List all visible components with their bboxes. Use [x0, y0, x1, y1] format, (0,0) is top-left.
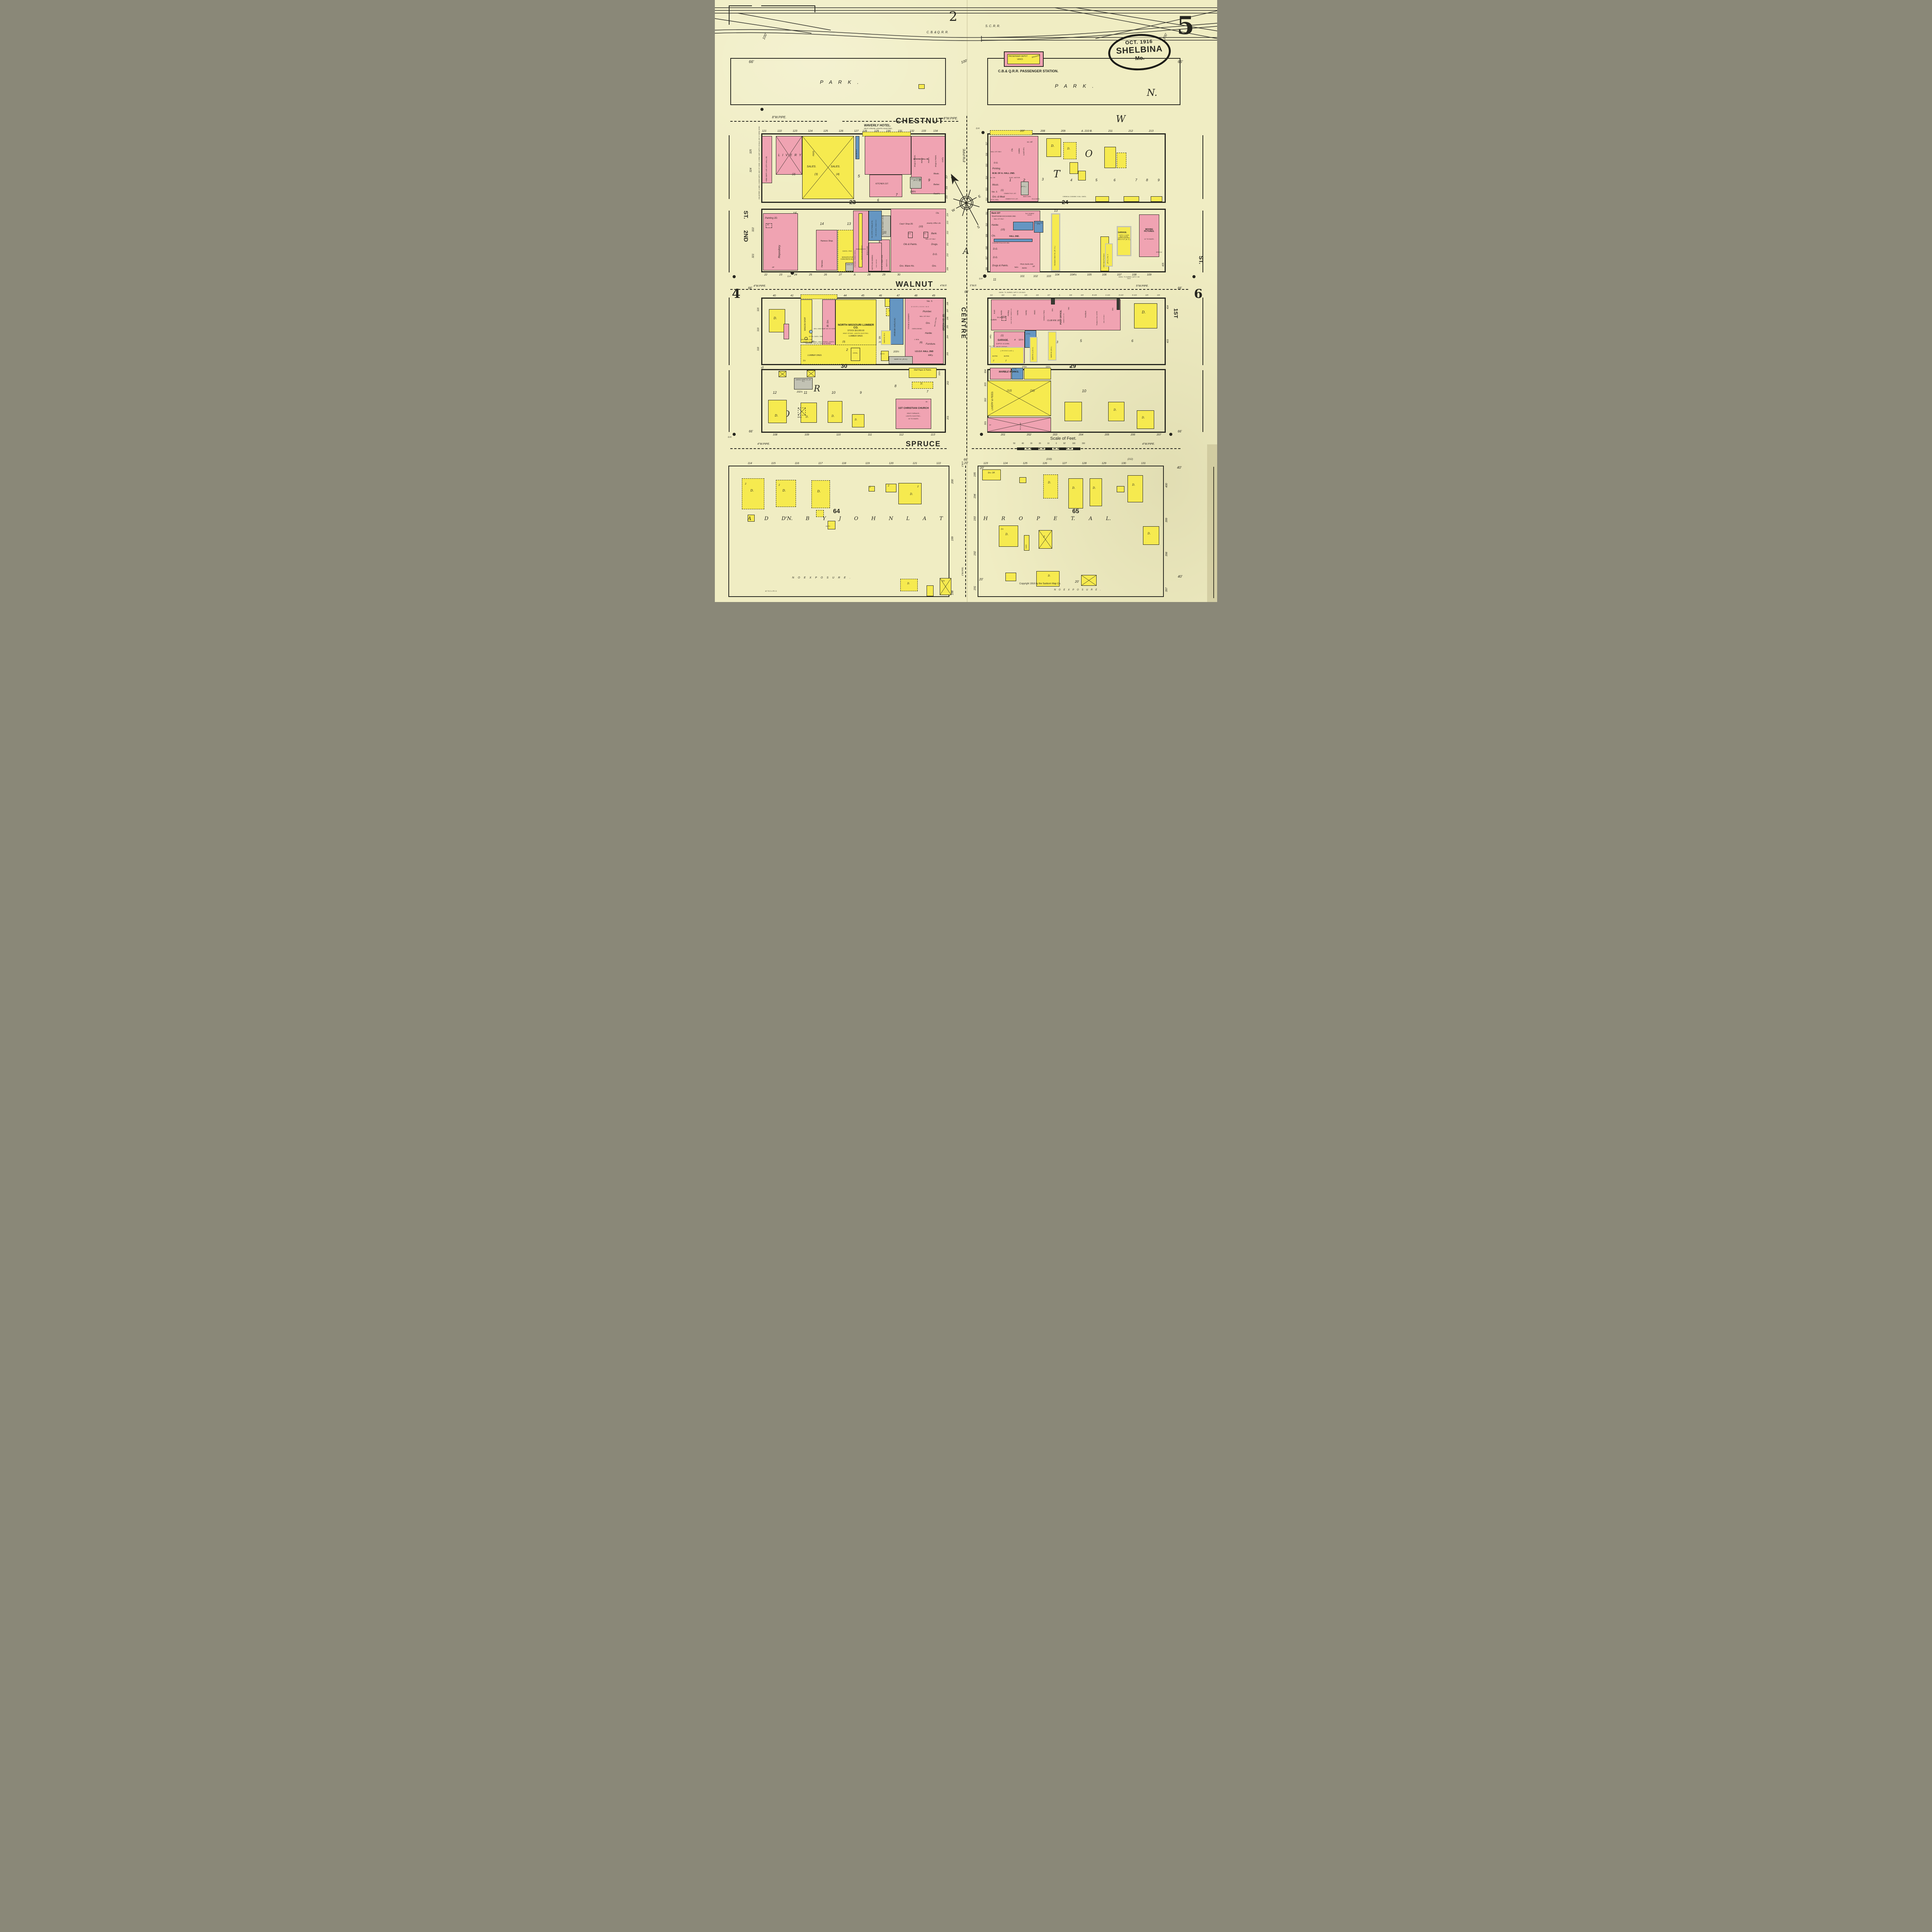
dim: 20': [1075, 580, 1079, 583]
store-label: 2ND Hand Furniture.: [1103, 253, 1105, 267]
railroad-label-scrr: S. C. R. R.: [985, 25, 1000, 28]
dwelling: [1117, 153, 1126, 168]
lot-number: 50: [1013, 443, 1015, 445]
lot-num: (15): [1001, 229, 1005, 231]
lot-num: 3: [1056, 341, 1058, 344]
livery-feed: [987, 381, 1051, 416]
store-label: Drs. Off.: [983, 472, 1000, 474]
lot-num: 9: [928, 179, 930, 182]
dim-66ft: 66': [1178, 287, 1182, 290]
water-pipe: [972, 289, 1188, 290]
lot-number: 114: [748, 462, 752, 465]
lot-number: 123: [983, 462, 988, 465]
store-label: Drugs & Paints.: [914, 155, 916, 167]
pipe-label: 5"W.P.: [970, 285, 976, 287]
lot-number: 23: [779, 274, 782, 276]
side-num: 193: [974, 516, 976, 521]
note: OVERLOOKING.: [912, 328, 922, 330]
dim: 20': [979, 578, 983, 581]
lot-num: 3: [1042, 178, 1044, 181]
side-num: 322: [752, 227, 755, 232]
store-label: Clo.: [992, 235, 996, 237]
side-num: 316: [986, 153, 988, 156]
note: ELEC. MOTOR.: [876, 259, 877, 267]
lumber-label: NORTH MISSOURI LUMBER CO.: [835, 324, 876, 330]
store-label: WARE HO. (IR.CL): [889, 359, 912, 360]
gasol-note: GASOL. T'K. BURIED. CAP'CY. 300 GALS.: [1117, 277, 1141, 279]
lot-number: 101: [1020, 275, 1025, 278]
lot-number: D'N.: [782, 516, 793, 522]
lot-row: 101102103: [1020, 275, 1051, 278]
shed: [1005, 573, 1016, 581]
street-centre-pipe: [965, 466, 966, 597]
dwelling-label: D.: [1142, 311, 1146, 315]
side-num: 204: [947, 335, 949, 338]
frame-mark: [729, 135, 730, 199]
side-num: 304: [985, 369, 987, 373]
dwelling-label: D.: [910, 493, 913, 496]
dwelling-label: D.: [1072, 487, 1075, 490]
lot-number: 208: [1041, 130, 1045, 133]
lot-number: 211: [1108, 130, 1112, 133]
dim-66ft: 66': [749, 430, 753, 433]
copyright: Copyright 1916 by the Sanborn Map Co.: [1019, 583, 1061, 585]
dwelling-label: D.: [920, 383, 923, 385]
lot-number: 122: [777, 130, 782, 133]
lot-num: 11: [883, 231, 886, 234]
block-number: 65: [1072, 509, 1079, 515]
dwelling-label: D.: [806, 416, 809, 418]
lot-number: 45: [861, 294, 864, 297]
dwelling-label: D.: [855, 419, 857, 421]
addition-letter: A: [963, 247, 969, 256]
lot-number: 41: [791, 294, 794, 297]
lot-num: 11: [804, 391, 807, 395]
dim-66ft: 66': [748, 287, 752, 290]
store-label: Variety: [1017, 310, 1019, 315]
lot-number: 108: [773, 434, 777, 436]
store-label: STAGE & SCENERY.: [908, 313, 910, 329]
church-note3: 16' TO EAVES.: [896, 418, 930, 420]
church-note2: LIGHTS: ELECTRIC.-: [896, 415, 930, 417]
store-label: Gro.: [926, 322, 930, 325]
note: OVERLOOKING: [911, 306, 930, 308]
note: EARTH FL'R.: [886, 259, 888, 267]
dwelling-label: D.: [775, 414, 778, 417]
store-label: Gro.: [932, 265, 937, 267]
lot-number: 40: [773, 294, 776, 297]
store-label: Bank.: [931, 233, 937, 235]
side-num: 205: [947, 325, 949, 328]
hydrant-dot: [733, 275, 736, 278]
lot-number: 112: [899, 434, 903, 436]
lot-number: 119: [866, 462, 870, 465]
note: (C.B.): [1013, 369, 1017, 370]
store-label: Conf'y.: [942, 157, 944, 162]
note: SPIRE 50': [1156, 252, 1162, 253]
lot-num: 9: [860, 391, 862, 395]
dwelling: [1128, 475, 1143, 502]
hydrant-dot: [760, 108, 764, 111]
note: BAKE OVEN: [1023, 196, 1031, 198]
lot-num: 130½: [910, 191, 916, 193]
pipe-label: 4"W.PIPE.: [753, 285, 766, 287]
lot-number: 125: [1145, 294, 1148, 296]
lot-number: A: [854, 274, 855, 276]
frame-mark: [729, 298, 730, 365]
side-num: 325: [750, 149, 752, 154]
store-label: Meats.: [934, 173, 939, 175]
opera-block: [905, 298, 944, 364]
note: (212): [1128, 458, 1133, 461]
block-number: 23: [849, 199, 856, 206]
dwelling: [1137, 410, 1154, 429]
lot-row: 40414243444546474849: [773, 294, 935, 297]
store-label: Harness.: [821, 260, 823, 267]
lot-num: 5: [879, 336, 881, 340]
store-label: COAL.: [851, 352, 860, 354]
store-label: Gro.: [1112, 307, 1114, 311]
note: WALL 1ST ONLY.: [991, 151, 1002, 153]
lot-number: 115: [771, 462, 776, 465]
dwelling: [1070, 162, 1078, 174]
side-num: 214: [947, 213, 949, 216]
side-num: 307: [986, 257, 988, 260]
side-num: 213: [947, 221, 949, 224]
hydrant-dot: [791, 271, 794, 275]
addition-letter: T: [1053, 169, 1060, 180]
paper-edge: [1207, 444, 1217, 602]
addition-letter: W: [1116, 114, 1126, 124]
lot-number: 10: [1047, 443, 1049, 445]
lot-num: 5: [858, 175, 860, 179]
side-num: 210: [947, 253, 949, 257]
depot-label: PASSENGER DEPOT.: [1009, 56, 1028, 58]
note: (IR.CL.2ND): [991, 199, 998, 201]
lot-number: 27: [839, 274, 842, 276]
lot-number: 26: [824, 274, 827, 276]
shed: [1081, 575, 1097, 586]
store-label: Hardw.: [1001, 310, 1003, 315]
lot-number: 20: [1039, 443, 1041, 445]
note: 1B.: [925, 401, 928, 403]
mp-label: MOVING PICTURES.: [1140, 229, 1158, 233]
lot-number: 213: [1149, 130, 1153, 133]
lot-number: 22: [764, 274, 767, 276]
dim: 40': [1178, 575, 1182, 578]
lot-number: 118: [842, 462, 846, 465]
ircl-box: [1021, 182, 1029, 195]
store-label: AUTO.: [880, 353, 885, 355]
dwelling-label: D.: [1005, 533, 1009, 536]
lot-number: C.121: [1105, 294, 1110, 296]
note: 1-BBL OF GASOL. CEMENT FL'R.: [876, 220, 877, 236]
lot-number: 28: [867, 274, 871, 276]
lot-number: 131: [1141, 462, 1146, 465]
side-num: 403: [1167, 339, 1169, 343]
lot-number: 46: [879, 294, 882, 297]
note: CEMENT FLR. 1ST.: [1004, 193, 1016, 195]
store-label: Furniture.: [926, 343, 936, 345]
water-pipe: [972, 448, 1180, 449]
dwelling: [1068, 478, 1083, 509]
lot-num: (3): [842, 341, 845, 343]
lot-num: 2: [917, 486, 918, 488]
lot-num: (1): [1001, 189, 1003, 192]
lumber-note: STOCK $10,000.00: [835, 330, 876, 332]
lumber-shed-label: LUMBER SHED.: [808, 355, 822, 357]
lot-number: J: [839, 516, 841, 522]
dwelling: [1104, 147, 1116, 168]
lot-number: 100: [1072, 443, 1075, 445]
pipe-label: 8"W.PIPE.: [963, 148, 966, 162]
side-num: 203: [947, 352, 949, 355]
note: W.G.: [908, 233, 911, 235]
lot-num: 2: [745, 483, 746, 485]
lot-row: 121122123124125126127: [762, 130, 859, 133]
store-label: Vac. S.: [992, 191, 998, 193]
auto-box: [881, 351, 889, 361]
lot-num: 13: [1054, 209, 1058, 213]
concrete-label: CONCRETE 8': [856, 149, 858, 158]
dwelling: [852, 414, 864, 427]
side-num: 212: [947, 231, 949, 234]
lot-num: 1½: [942, 580, 945, 582]
no-exposure: N O E X P O S U R E .: [792, 577, 852, 579]
side-num: 400: [1165, 483, 1168, 488]
side-num: 317: [986, 142, 988, 145]
lot-number: 125: [1023, 462, 1027, 465]
side-num: 200: [951, 479, 954, 484]
store-label: Hardw.: [925, 332, 932, 335]
lot-row: 112113114115116117A.118119B.120C.121D.12…: [990, 294, 1160, 296]
lot-number: 120: [889, 462, 893, 465]
store-label: Tin Shop 2ND (C.B.): [1034, 223, 1043, 225]
side-num: 208: [947, 302, 949, 305]
dwelling: [1065, 402, 1082, 421]
lot-number: 29: [883, 274, 886, 276]
side-num: 201: [947, 416, 949, 420]
side-num: 310: [986, 223, 988, 226]
side-num: 321: [752, 253, 755, 258]
note: (C.B.): [1026, 333, 1030, 335]
side-num: 308: [986, 247, 988, 250]
hydrant-dot: [1169, 433, 1172, 436]
store-label: Drugs & Paints.: [935, 155, 937, 167]
note: (TILE WALL, CEMENT COV'D.): [855, 250, 856, 267]
store-label: WAGON SHOP.: [804, 317, 806, 331]
lot-number: 30: [897, 274, 900, 276]
dwelling-label: D.: [782, 489, 786, 492]
church-note: HEAT: FURNACE.-: [896, 413, 930, 414]
paper-fold: [967, 0, 968, 602]
dim: 40': [1177, 466, 1182, 469]
lot-num: (6): [920, 342, 922, 344]
hydrant-dot: [733, 433, 736, 436]
lot-num: (2): [792, 173, 796, 176]
store-label: W.R'M.: [1004, 355, 1009, 357]
store-label: Music.: [992, 184, 999, 186]
lot-number: 129: [1102, 462, 1106, 465]
lot-number: 103: [1046, 275, 1051, 278]
lumber-note2: HEAT: STOVE:- LIGHTS: ELECTRIC-: [835, 333, 876, 334]
lot-num: 2: [779, 484, 780, 486]
frame-mark: [1202, 370, 1203, 432]
dim-66ft: 66': [1178, 60, 1183, 64]
sanborn-map-sheet: OCT. 1916 SHELBINA Mo. 5 S N E S W 2S. C…: [715, 0, 1217, 602]
note: GASOL. ENG.: [842, 250, 852, 252]
lot-number: 205: [1105, 434, 1109, 436]
store-label: Cobbler.: [1019, 148, 1020, 154]
lot-number: 0: [1056, 443, 1057, 445]
note: 40' TO 2 x FR. D.: [765, 590, 777, 592]
frame-mark: [1202, 298, 1203, 365]
lot-number: A: [748, 516, 751, 522]
lot-num: 8: [895, 384, 896, 388]
lot-num: (12): [1007, 389, 1012, 392]
frame-mark: [729, 370, 730, 432]
dwelling-label: D.: [1067, 148, 1070, 150]
side-num: 397: [1165, 587, 1168, 592]
store-label: Gro. W.R'M. & Poultry (C.B.): [872, 221, 873, 238]
dim-66ft: 66': [1178, 430, 1182, 433]
lot-number: 113: [1002, 294, 1004, 296]
shed: [886, 484, 896, 492]
dwelling-label: D.: [817, 490, 821, 493]
lot-num: (4): [836, 173, 840, 176]
side-num: 302: [985, 398, 987, 402]
note: TILE CEMENT COV'D.: [1023, 213, 1036, 216]
frame-mark: [1202, 135, 1203, 199]
lot-row: 207208209A. 210 B.211212213: [1020, 130, 1153, 133]
lot-number: 113: [931, 434, 935, 436]
store-label: W.R'M.: [992, 355, 998, 357]
shed: [1124, 196, 1139, 202]
lot-number: 212: [1129, 130, 1133, 133]
power-note: POWER: GASOL. ENG.- HEAT: STOVES.- LIGHT…: [801, 342, 835, 344]
hatch: [1117, 298, 1120, 310]
store-label: Wholesale Conf'y (C.B.): [894, 318, 896, 336]
lot-number: 206: [1131, 434, 1135, 436]
store-label: Produce & Gro. W.R'M.: [1097, 311, 1098, 325]
lot-num: 10: [1082, 389, 1086, 393]
lot-row: 222324252627A282930: [764, 274, 900, 276]
store-label: Furniture.: [1085, 310, 1087, 318]
lot-number: 44: [844, 294, 847, 297]
note: CHEMICAL CLEANING. 5 GAL. GASOL.: [1063, 196, 1087, 198]
store-label: Painting 2D.: [765, 217, 778, 219]
xbox: [1039, 530, 1052, 549]
store-label: WARE HO. IR.CL: [884, 333, 886, 343]
pipe-label: 8"W.PIPE.: [944, 117, 958, 120]
well-note: WELL HAND PUMP 100' 1½" HOSE.: [814, 328, 835, 330]
note: CONCRETE BLOCKS 2ND.: [992, 243, 1010, 244]
lot-number: 114: [1013, 294, 1015, 296]
lot-number: 106: [1102, 274, 1107, 276]
lot-number: 117: [1048, 294, 1050, 296]
well-dot: [809, 330, 813, 333]
lot-number: 130: [1121, 462, 1126, 465]
drs-off: [982, 469, 1001, 480]
lot-number: 48: [914, 294, 917, 297]
kitchen-label: KITCHEN 1ST.: [876, 183, 888, 185]
garage-note: CAP'CY. 9 CARS HEAT: STOVE- LIGHTS: ELEC…: [1117, 235, 1131, 240]
addition-row: ADD'N.BYJOHNLAT: [748, 516, 943, 522]
store-label: Gro.: [1052, 308, 1054, 311]
livery-feed-label: LIVERY & FEED.: [992, 391, 994, 410]
store-label: Bl.Sm. & Wagon Shop.: [882, 255, 883, 270]
frame-mark: [729, 211, 730, 272]
store-label: Tin Shop 2D.: [997, 317, 1006, 318]
lot-num: 7: [927, 390, 928, 393]
lot-number: 125: [823, 130, 828, 133]
dwelling-label: D.: [1114, 409, 1117, 412]
lot-num: 1: [1009, 179, 1011, 182]
lot-number: 121: [762, 130, 767, 133]
dwelling-label: D.: [1048, 575, 1051, 577]
store-label: Clo.: [936, 213, 939, 214]
lumber-note3: LUMBER SHED.: [835, 335, 876, 337]
addition-letter: O: [1085, 149, 1093, 159]
dwelling-label: D.: [907, 583, 910, 585]
lot-number: L: [906, 516, 910, 522]
lot-number: 201: [1001, 434, 1005, 436]
sales-label: SALES.: [807, 165, 816, 168]
dwelling: [1078, 171, 1086, 180]
lot-number: 150: [1082, 443, 1085, 445]
lot-number: D.122: [1119, 294, 1123, 296]
side-num: 319: [757, 328, 760, 332]
dwelling-label: D.: [750, 489, 754, 492]
adjacent-sheet-right: 6: [1194, 287, 1202, 300]
dwelling: [1043, 474, 1058, 498]
store-label: Plumber.: [923, 311, 932, 313]
lot-number: N: [889, 516, 893, 522]
lot-num: 2: [1023, 179, 1025, 182]
hydrant-label: D.H.: [976, 128, 980, 130]
store-label: Harness Shop.: [818, 240, 836, 242]
park-west-label: P A R K .: [820, 80, 861, 85]
street-centre: CENTRE: [960, 307, 966, 352]
side-num: 192: [974, 551, 976, 556]
lot-number: 207: [1020, 130, 1025, 133]
store-label: Drugs & Paints.: [992, 265, 1009, 267]
lot-number: B.120: [1092, 294, 1097, 296]
pipe-label: 4"W.P.: [940, 285, 947, 287]
lot-number: 128: [1082, 462, 1087, 465]
water-pipe: [730, 448, 947, 449]
lot-number: 25: [809, 274, 812, 276]
lot-num: 7: [896, 193, 898, 197]
lot-num: A: [1014, 339, 1015, 341]
lot-num: 10: [832, 391, 835, 395]
lot-num: 14: [820, 222, 824, 226]
side-num: 217: [946, 175, 948, 179]
lot-num: 6: [877, 199, 879, 202]
street-walnut: WALNUT: [896, 281, 934, 289]
side-num: 303: [985, 383, 987, 386]
side-num: 315: [986, 164, 988, 167]
store-label: Off.: [1032, 266, 1035, 267]
store-label: Music.: [1034, 310, 1036, 315]
harness: [816, 230, 837, 270]
lot-num: 2: [1005, 360, 1007, 362]
side-num: 306: [986, 267, 988, 270]
frame-mark: [729, 5, 752, 6]
lot-number: 126: [1157, 294, 1160, 296]
side-num: 191: [974, 586, 976, 590]
lot-number: 123: [793, 130, 797, 133]
